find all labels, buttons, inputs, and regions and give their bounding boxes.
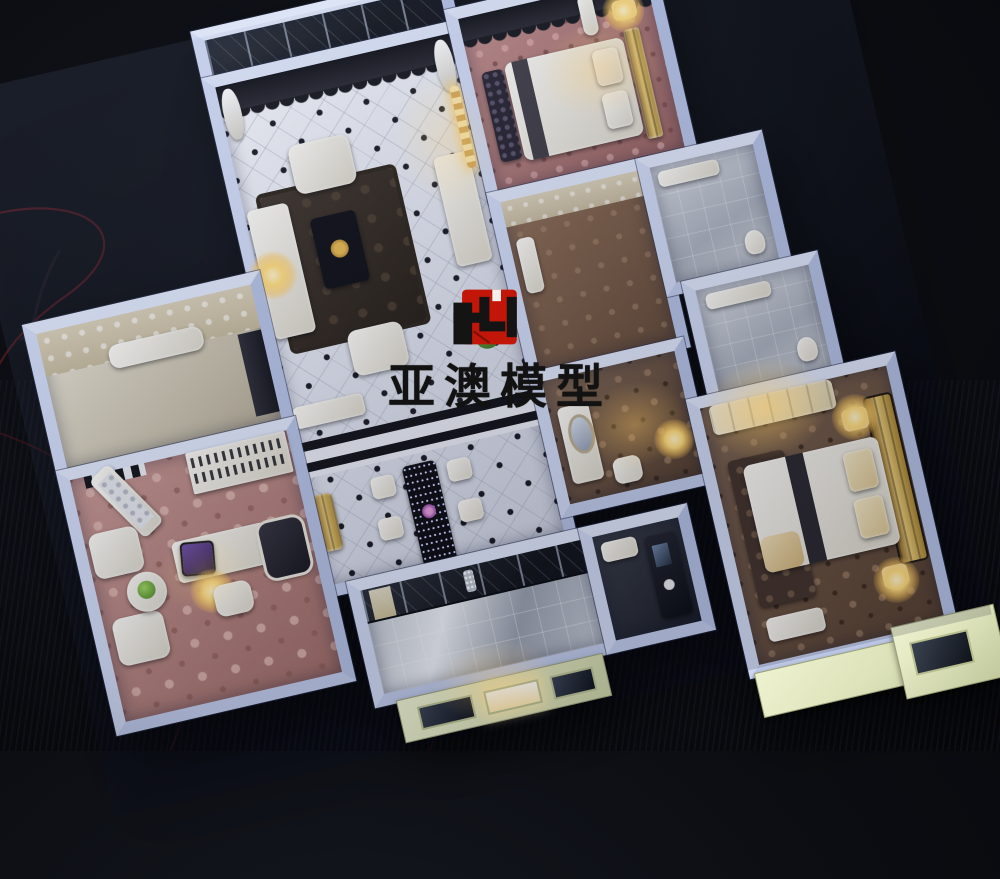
ornate-chair [611,454,644,486]
flower-centerpiece [421,503,438,520]
facade-window [909,629,975,676]
vanity [704,280,772,310]
table-plant [136,579,158,601]
dining-chair [445,456,473,483]
hall-door [515,236,545,295]
bedside-lamp-glow [598,0,648,36]
photo-of-miniature-apartment-model: { "watermark": { "brand_text": "亚澳模型", "… [0,0,1000,751]
dining-chair [457,496,485,523]
lace-trim [221,60,457,124]
dark-armchair [257,515,312,579]
kitchen-cabinet [600,536,640,564]
pillow [853,494,891,540]
vanity [657,158,721,188]
door-damask-panel [97,472,154,529]
facade-window [417,694,477,730]
apartment-scale-model [0,0,992,817]
lit-facade-window [483,679,543,715]
dresser [556,402,605,485]
damask-wallpaper-wall [36,285,260,377]
bed [503,37,644,162]
gold-decor [329,238,351,260]
facade-window [549,666,597,699]
oval-mirror [564,412,598,457]
appliance-screen [652,542,673,567]
bookshelf [185,431,294,495]
dining-chair [377,515,405,542]
low-dresser [765,606,827,642]
pillow [591,46,624,87]
pillow [842,447,880,493]
armchair [87,525,146,581]
doorway-opening [237,329,279,416]
sideboard [291,392,366,430]
round-side-table [123,568,171,616]
wall-clock [663,578,676,591]
bedside-lamp-glow [869,552,924,607]
pillow [601,89,634,130]
dining-chair [369,473,397,500]
refrigerator [644,530,694,619]
toilet [795,335,820,363]
armchair [111,609,172,667]
potted-plant [471,316,503,351]
toilet [742,228,767,256]
